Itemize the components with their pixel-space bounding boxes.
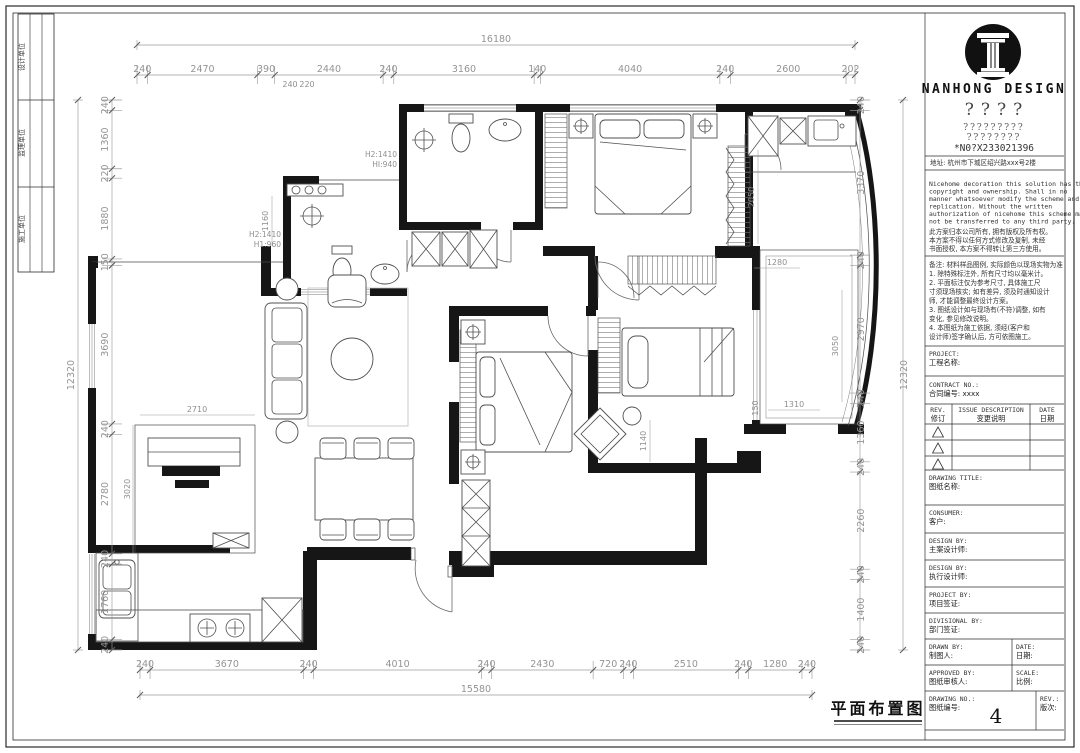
dim-150: 150 bbox=[751, 400, 760, 415]
drawing-title-field[interactable]: 图纸名称: bbox=[929, 482, 960, 491]
window-bath1-top bbox=[424, 105, 516, 112]
drawing-title-label: DRAWING TITLE: bbox=[929, 474, 983, 482]
title-block: NANHONG DESIGN ???? ????????? ???????? *… bbox=[922, 24, 1080, 730]
svg-text:240: 240 bbox=[133, 64, 151, 75]
dim-chain-top: 24024703902440240316014040402402600202 bbox=[133, 64, 859, 84]
brand-q2: ????????? bbox=[963, 123, 1024, 133]
consumer-field[interactable]: 客户: bbox=[929, 517, 946, 526]
dim-chain-bottom: 2403670240401024024307202402510240128024… bbox=[136, 659, 816, 679]
svg-text:12320: 12320 bbox=[66, 360, 77, 390]
svg-text:4. 本图纸为施工依据, 须经(客户和: 4. 本图纸为施工依据, 须经(客户和 bbox=[929, 323, 1030, 332]
svg-text:2440: 2440 bbox=[317, 64, 341, 75]
brand-phone: *N0?X233021396 bbox=[954, 143, 1034, 154]
svg-text:REV.: REV. bbox=[930, 406, 945, 414]
svg-text:15580: 15580 bbox=[461, 684, 491, 695]
bathroom-left bbox=[287, 184, 399, 284]
svg-text:2260: 2260 bbox=[856, 509, 867, 533]
svg-text:1400: 1400 bbox=[856, 598, 867, 622]
svg-text:修订: 修订 bbox=[931, 414, 945, 423]
dim-1310: 1310 bbox=[784, 400, 804, 409]
rev-field: 版次: bbox=[1040, 703, 1057, 712]
svg-text:3690: 3690 bbox=[100, 333, 111, 357]
svg-text:设计师)签字确认后, 方可依图施工。: 设计师)签字确认后, 方可依图施工。 bbox=[929, 332, 1035, 341]
project-label: PROJECT: bbox=[929, 350, 960, 358]
signature-strip: 设计单位 监理单位 施工单位 bbox=[17, 14, 54, 272]
dim-1280: 1280 bbox=[767, 258, 787, 267]
svg-text:2510: 2510 bbox=[674, 659, 698, 670]
divisional-label: DIVISIONAL BY: bbox=[929, 617, 983, 625]
drawingno-field: 图纸编号: bbox=[929, 703, 960, 712]
svg-text:240: 240 bbox=[856, 565, 867, 583]
svg-text:ISSUE DESCRIPTION: ISSUE DESCRIPTION bbox=[958, 406, 1024, 414]
copyright-cn: 此方案归本公司所有, 拥有版权及所有权。 本方案不得以任何方式修改及复制, 未经… bbox=[929, 227, 1052, 253]
contract-no-field[interactable]: 合同编号: xxxx bbox=[929, 389, 980, 398]
svg-text:240: 240 bbox=[856, 251, 867, 269]
svg-text:240: 240 bbox=[477, 659, 495, 670]
window-kitchen-left bbox=[90, 554, 95, 634]
svg-text:240: 240 bbox=[100, 550, 111, 568]
svg-text:240: 240 bbox=[716, 64, 734, 75]
dim-chain-top-sub: 240 220 bbox=[282, 80, 314, 89]
cad-sheet: 设计单位 监理单位 施工单位 bbox=[0, 0, 1080, 753]
dim-chain-left-overall: 12320 bbox=[66, 97, 83, 653]
brand-logo-icon bbox=[965, 24, 1021, 80]
svg-text:1360: 1360 bbox=[100, 127, 111, 151]
svg-text:240: 240 bbox=[798, 659, 816, 670]
svg-text:备注: 材料样品图例, 实际颜色以现场实物为准: 备注: 材料样品图例, 实际颜色以现场实物为准 bbox=[929, 260, 1063, 269]
svg-text:16180: 16180 bbox=[481, 34, 511, 45]
consumer-label: CONSUMER: bbox=[929, 509, 964, 517]
label-h2-left: H2:1410 bbox=[249, 230, 281, 239]
brand-q3: ???????? bbox=[967, 133, 1022, 143]
svg-text:3160: 3160 bbox=[452, 64, 476, 75]
svg-text:书面授权, 本方案不得转让第三方使用。: 书面授权, 本方案不得转让第三方使用。 bbox=[929, 244, 1045, 253]
project-name-field[interactable]: 工程名称: bbox=[929, 358, 960, 367]
revision-triangle-icon bbox=[933, 427, 944, 437]
label-h1-top: HI:940 bbox=[372, 160, 397, 169]
revision-triangle-icon bbox=[933, 443, 944, 453]
svg-text:720: 720 bbox=[599, 659, 617, 670]
svg-text:240: 240 bbox=[100, 96, 111, 114]
svg-text:日期: 日期 bbox=[1040, 414, 1054, 423]
svg-text:4010: 4010 bbox=[385, 659, 409, 670]
dim-chain-bottom-overall: 15580 bbox=[137, 684, 815, 700]
svg-text:2600: 2600 bbox=[776, 64, 800, 75]
svg-text:240: 240 bbox=[136, 659, 154, 670]
bedroom2 bbox=[460, 320, 572, 566]
window-master-top bbox=[570, 105, 716, 112]
design1-label: DESIGN BY: bbox=[929, 537, 967, 545]
balcony bbox=[760, 250, 858, 424]
dim-chain-right-overall: 12320 bbox=[898, 97, 910, 653]
floor-plan: 2710 3020 1160 2050 1280 3050 1310 150 1… bbox=[88, 104, 876, 650]
closet-room bbox=[748, 116, 856, 156]
contract-label: CONTRACT NO.: bbox=[929, 381, 979, 389]
approved-field[interactable]: 图纸审核人: bbox=[929, 677, 967, 686]
brand-q1: ???? bbox=[965, 100, 1029, 120]
drawingno-label: DRAWING NO.: bbox=[929, 695, 975, 703]
svg-text:240: 240 bbox=[100, 636, 111, 654]
drawing-label: 平面布置图 bbox=[830, 699, 925, 725]
piano-room bbox=[135, 425, 255, 553]
svg-text:140: 140 bbox=[528, 64, 546, 75]
svg-text:202: 202 bbox=[841, 64, 859, 75]
svg-text:3370: 3370 bbox=[856, 171, 867, 195]
divisional-field[interactable]: 部门签证: bbox=[929, 625, 960, 634]
dim-1140: 1140 bbox=[639, 431, 648, 451]
dim-top-sub-240: 240 bbox=[282, 80, 297, 89]
svg-text:1360: 1360 bbox=[856, 420, 867, 444]
svg-text:240: 240 bbox=[856, 458, 867, 476]
label-h2-top: H2:1410 bbox=[365, 150, 397, 159]
svg-text:220: 220 bbox=[100, 164, 111, 182]
kitchen bbox=[96, 553, 303, 642]
window-living-left bbox=[90, 324, 95, 388]
dining-set bbox=[315, 438, 414, 540]
revision-triangle-icon bbox=[933, 459, 944, 469]
design2-label: DESIGN BY: bbox=[929, 564, 967, 572]
svg-text:1880: 1880 bbox=[100, 207, 111, 231]
svg-text:1760: 1760 bbox=[100, 590, 111, 614]
dim-chain-top-overall: 16180 bbox=[134, 34, 858, 50]
svg-text:寸须现场核实; 如有差异, 须及时通知设计: 寸须现场核实; 如有差异, 须及时通知设计 bbox=[929, 287, 1050, 296]
brand-name: NANHONG DESIGN bbox=[922, 82, 1067, 97]
master-bedroom bbox=[545, 114, 750, 246]
date-label: DATE: bbox=[1016, 643, 1035, 651]
svg-text:2430: 2430 bbox=[530, 659, 554, 670]
svg-text:390: 390 bbox=[257, 64, 275, 75]
label-h1-left: H1:960 bbox=[254, 240, 281, 249]
scale-field[interactable]: 比例: bbox=[1016, 677, 1033, 686]
hall-cabinets bbox=[412, 230, 497, 268]
dim-top-sub-220: 220 bbox=[299, 80, 314, 89]
drawing-label-text: 平面布置图 bbox=[830, 699, 925, 718]
svg-text:not be transferred to any thir: not be transferred to any third party. bbox=[929, 218, 1075, 226]
svg-text:150: 150 bbox=[100, 253, 111, 271]
svg-text:240: 240 bbox=[619, 659, 637, 670]
design2-field[interactable]: 执行设计师: bbox=[929, 572, 967, 581]
svg-text:变更说明: 变更说明 bbox=[977, 414, 1006, 423]
svg-text:3670: 3670 bbox=[215, 659, 239, 670]
living-room bbox=[265, 275, 408, 443]
dim-3020: 3020 bbox=[123, 479, 132, 499]
svg-text:2780: 2780 bbox=[100, 482, 111, 506]
svg-text:DATE: DATE bbox=[1039, 406, 1055, 414]
strip-cell-construct: 施工单位 bbox=[17, 215, 26, 243]
svg-text:240: 240 bbox=[300, 659, 318, 670]
rev-label: REV.: bbox=[1040, 695, 1059, 703]
page-number: 4 bbox=[990, 704, 1003, 728]
dim-1160: 1160 bbox=[261, 211, 270, 231]
projectby-field[interactable]: 项目签证: bbox=[929, 599, 960, 608]
approved-label: APPROVED BY: bbox=[929, 669, 975, 677]
copyright-en: Nicehome decoration this solution has th… bbox=[929, 180, 1080, 226]
design1-field[interactable]: 主案设计师: bbox=[929, 545, 967, 554]
svg-text:师, 才能调整最终设计方案。: 师, 才能调整最终设计方案。 bbox=[929, 296, 1012, 305]
floor-plan-drawing: 设计单位 监理单位 施工单位 bbox=[0, 0, 1080, 753]
dim-2050: 2050 bbox=[747, 187, 756, 207]
svg-text:240: 240 bbox=[100, 420, 111, 438]
svg-text:变化, 参见修改说明。: 变化, 参见修改说明。 bbox=[929, 314, 993, 323]
date-field[interactable]: 日期: bbox=[1016, 651, 1033, 660]
furniture bbox=[96, 114, 858, 642]
svg-text:1280: 1280 bbox=[763, 659, 787, 670]
svg-text:本方案不得以任何方式修改及复制, 未经: 本方案不得以任何方式修改及复制, 未经 bbox=[929, 236, 1046, 245]
svg-text:2. 平面标注仅为参考尺寸, 具体施工尺: 2. 平面标注仅为参考尺寸, 具体施工尺 bbox=[929, 278, 1041, 287]
scale-label: SCALE: bbox=[1016, 669, 1039, 677]
svg-text:2970: 2970 bbox=[856, 317, 867, 341]
drawn-label: DRAWN BY: bbox=[929, 643, 964, 651]
svg-text:2470: 2470 bbox=[190, 64, 214, 75]
svg-text:4040: 4040 bbox=[618, 64, 642, 75]
projectby-label: PROJECT BY: bbox=[929, 591, 971, 599]
strip-cell-design: 设计单位 bbox=[17, 43, 26, 71]
drawn-field[interactable]: 制图人: bbox=[929, 651, 953, 660]
svg-text:3. 图纸设计如与现场有(不符)调整, 如有: 3. 图纸设计如与现场有(不符)调整, 如有 bbox=[929, 305, 1046, 314]
svg-text:1. 除特殊标注外, 所有尺寸均以毫米计。: 1. 除特殊标注外, 所有尺寸均以毫米计。 bbox=[929, 269, 1047, 278]
address: 地址: 杭州市下城区绍兴路xxx号2楼 bbox=[930, 158, 1036, 167]
svg-text:240: 240 bbox=[734, 659, 752, 670]
strip-cell-supervise: 监理单位 bbox=[17, 129, 26, 157]
svg-text:240: 240 bbox=[856, 389, 867, 407]
svg-text:240: 240 bbox=[856, 636, 867, 654]
revision-table: REV. 修订 ISSUE DESCRIPTION 变更说明 DATE 日期 bbox=[925, 404, 1064, 470]
bathroom-top bbox=[412, 114, 521, 152]
svg-text:240: 240 bbox=[379, 64, 397, 75]
dim-2710: 2710 bbox=[187, 405, 207, 414]
svg-text:12320: 12320 bbox=[899, 360, 910, 390]
svg-text:此方案归本公司所有, 拥有版权及所有权。: 此方案归本公司所有, 拥有版权及所有权。 bbox=[929, 227, 1052, 236]
dim-3050: 3050 bbox=[831, 336, 840, 356]
svg-text:240: 240 bbox=[856, 96, 867, 114]
notes: 备注: 材料样品图例, 实际颜色以现场实物为准 1. 除特殊标注外, 所有尺寸均… bbox=[929, 260, 1063, 341]
